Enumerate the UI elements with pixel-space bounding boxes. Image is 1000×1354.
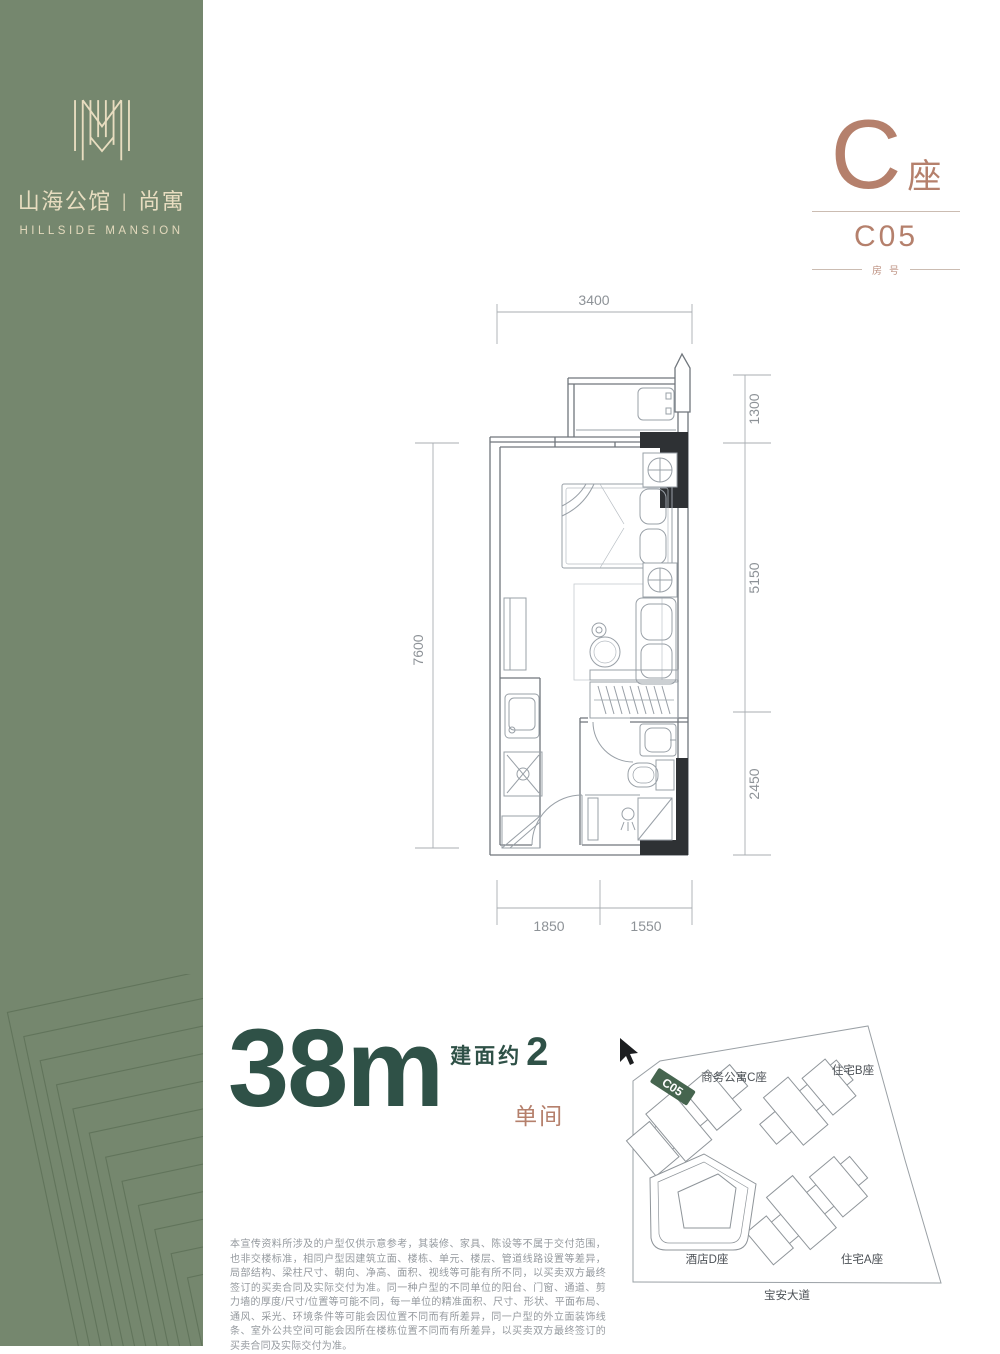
area-value: 38m — [228, 1014, 442, 1131]
mansion-monogram-icon — [55, 88, 149, 174]
brand-name-sub: 尚寓 — [138, 189, 185, 214]
room-code: C05 — [812, 220, 960, 254]
block-suffix: 座 — [907, 149, 941, 198]
dimension-labels: 3400 7600 1300 5150 2450 1850 1550 — [410, 292, 762, 934]
label-road: 宝安大道 — [764, 1288, 810, 1302]
room-type-label: 单间 — [514, 1097, 564, 1131]
brand-name-main: 山海公馆 — [18, 189, 112, 214]
bathroom-door-swing — [593, 722, 633, 762]
dimension-lines — [415, 304, 771, 925]
furniture — [502, 388, 678, 848]
toilet — [628, 760, 674, 790]
label-building-b: 住宅B座 — [832, 1063, 874, 1077]
brand-sidebar: 山海公馆丨尚寓 HILLSIDE MANSION — [0, 0, 203, 1346]
brand-divider: 丨 — [112, 193, 139, 214]
disclaimer-text: 本宣传资料所涉及的户型仅供示意参考，其装修、家具、陈设等不属于交付范围，也非交楼… — [230, 1238, 606, 1354]
stove — [504, 752, 542, 796]
dim-right-mid: 5150 — [746, 562, 762, 593]
site-plan: C05 商务公寓C座 住宅B座 酒店D座 住宅A座 宝安大道 — [610, 1020, 980, 1310]
block-title: C 座 — [812, 108, 960, 201]
structural-columns — [640, 432, 688, 855]
floorplan-poster: { "brand": { "cn_left": "山海公馆", "divider… — [0, 0, 1000, 1346]
wardrobe — [590, 670, 678, 718]
caption-line-right — [910, 269, 960, 270]
shower-head — [621, 808, 635, 831]
tv-cabinet — [504, 598, 526, 670]
brand-block: 山海公馆丨尚寓 HILLSIDE MANSION — [0, 88, 203, 237]
block-letter: C — [831, 108, 902, 201]
brand-name-cn: 山海公馆丨尚寓 — [0, 184, 203, 216]
cursor-icon — [620, 1038, 638, 1065]
side-table — [590, 623, 620, 667]
sofa — [636, 598, 676, 684]
label-building-d: 酒店D座 — [686, 1252, 729, 1266]
label-building-a: 住宅A座 — [841, 1252, 883, 1266]
area-callout: 38m 建面约 2 单间 — [228, 1014, 564, 1131]
area-side: 建面约 2 单间 — [450, 1014, 564, 1131]
caption-line-left — [812, 269, 862, 270]
floor-plan-drawing: 3400 7600 1300 5150 2450 1850 1550 — [405, 285, 775, 955]
bed — [562, 484, 672, 568]
brand-name-en: HILLSIDE MANSION — [0, 225, 203, 237]
bath-mat — [638, 798, 672, 840]
dim-bottom-left: 1850 — [533, 918, 564, 934]
room-caption: 房号 — [862, 262, 910, 277]
kitchen-sink — [505, 694, 539, 738]
dim-right-top: 1300 — [746, 393, 762, 424]
dim-bottom-right: 1550 — [630, 918, 661, 934]
shower-panel — [588, 798, 598, 840]
fan-symbol-upper — [643, 453, 677, 487]
dim-left: 7600 — [410, 634, 426, 665]
terrace-lines-decoration — [0, 974, 203, 1346]
dim-top: 3400 — [578, 292, 609, 308]
area-superscript: 2 — [526, 1030, 548, 1075]
header-divider — [812, 211, 960, 212]
area-approx-label: 建面约 — [450, 1030, 522, 1070]
room-caption-row: 房号 — [812, 262, 960, 277]
building-b — [748, 1046, 864, 1158]
bath-sink — [640, 724, 676, 756]
fan-symbol-lower — [643, 563, 677, 597]
label-building-c: 商务公寓C座 — [701, 1070, 767, 1084]
dim-right-bottom: 2450 — [746, 768, 762, 799]
kitchen-corner-cabinet — [502, 816, 540, 848]
unit-header: C 座 C05 房号 — [812, 108, 960, 277]
